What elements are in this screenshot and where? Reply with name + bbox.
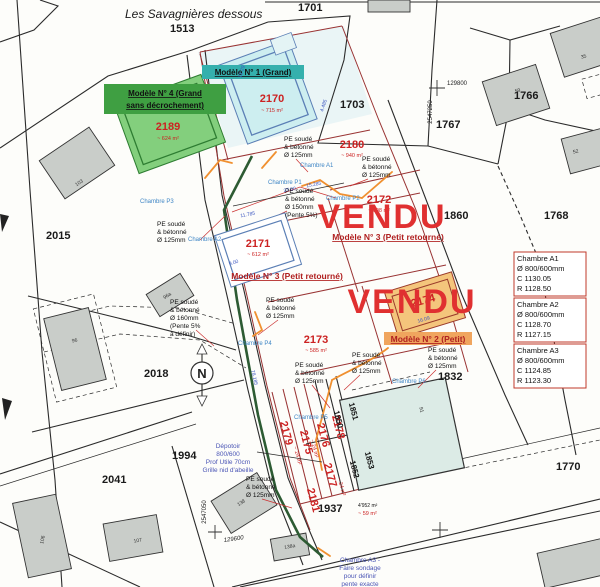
parcel-1937-area: 4'952 m² bbox=[358, 503, 378, 509]
chambre-p4: Chambre P4 bbox=[238, 341, 272, 347]
chambre-p1: Chambre P1 bbox=[268, 180, 302, 186]
lot-2173: 2173 bbox=[304, 334, 328, 346]
model3-label-west: Modèle N° 3 (Petit retourné) bbox=[231, 271, 343, 281]
chambre-p3: Chambre P3 bbox=[140, 199, 174, 205]
parcel-1860: 1860 bbox=[444, 210, 468, 222]
pe-note-10: PE soudé& bétonnéØ 125mm bbox=[246, 476, 276, 499]
lot-2173-area: ~ 585 m² bbox=[305, 348, 327, 354]
lot-2180: 2180 bbox=[340, 139, 364, 151]
parcel-1703: 1703 bbox=[340, 99, 364, 111]
chamber-table: Chambre A1Ø 800/600mmC 1130.05R 1128.50 … bbox=[514, 252, 586, 388]
chambre-p2: Chambre P2 bbox=[326, 196, 360, 202]
coord-bottom-north: 2547050 bbox=[202, 500, 208, 524]
pe-note-9: PE soudé& bétonnéØ 125mm bbox=[295, 362, 325, 385]
pe-note-4: PE soudé& bétonnéØ 125mm bbox=[362, 156, 392, 179]
model2-label: Modèle N° 2 (Petit) bbox=[391, 334, 466, 344]
chambre-a2: Chambre A2 bbox=[188, 237, 222, 243]
parcel-1770: 1770 bbox=[556, 461, 580, 473]
parcel-1767: 1767 bbox=[436, 119, 460, 131]
building-top bbox=[368, 0, 410, 12]
parcel-1768: 1768 bbox=[544, 210, 568, 222]
pe-note-8: PE soudé& bétonnéØ 125mm bbox=[428, 347, 458, 370]
vendu-stamp-1: VENDU bbox=[317, 198, 446, 236]
parcel-2015: 2015 bbox=[46, 230, 70, 242]
parcel-1701: 1701 bbox=[298, 2, 322, 14]
pe-note-6: PE soudé& bétonnéØ 125mm bbox=[266, 297, 296, 320]
lot-2171-area: ~ 612 m² bbox=[247, 252, 269, 258]
parcel-2018: 2018 bbox=[144, 368, 168, 380]
area-title: Les Savagnières dessous bbox=[125, 7, 262, 21]
parcel-1937-area-red: ~ 59 m² bbox=[358, 511, 377, 517]
model1-label: Modèle N° 1 (Grand) bbox=[215, 68, 292, 77]
lot-2189-area: ~ 624 m² bbox=[157, 136, 179, 142]
coord-top-east: 129800 bbox=[447, 81, 468, 87]
pe-note-7: PE soudé& bétonnéØ 125mm bbox=[352, 352, 382, 375]
lot-2170: 2170 bbox=[260, 93, 284, 105]
model4-label-line2: sans décrochement) bbox=[126, 101, 204, 110]
lot-2189: 2189 bbox=[156, 121, 180, 133]
vendu-stamp-2: VENDU bbox=[347, 283, 476, 321]
model4-label-line1: Modèle N° 4 (Grand bbox=[128, 89, 202, 98]
parcel-1832: 1832 bbox=[438, 371, 462, 383]
parcel-1994: 1994 bbox=[172, 450, 197, 462]
cadastral-plan: N Les Savagnières dessous 1513 1701 1703… bbox=[0, 0, 600, 587]
chambre-a1: Chambre A1 bbox=[300, 163, 334, 169]
pe-note-1: PE soudé& bétonnéØ 125mm bbox=[157, 221, 187, 244]
coord-top-north: 2547250 bbox=[428, 100, 434, 124]
parcel-2041: 2041 bbox=[102, 474, 126, 486]
chambre-p5: Chambre P5 bbox=[294, 415, 328, 421]
pe-note-3: PE soudé& bétonnéØ 125mm bbox=[284, 136, 314, 159]
chambre-p6: Chambre P6 bbox=[392, 379, 426, 385]
lot-2180-area: ~ 940 m² bbox=[341, 153, 363, 159]
lot-2170-area: ~ 715 m² bbox=[261, 108, 283, 114]
lot-2171: 2171 bbox=[246, 238, 270, 250]
parcel-1513: 1513 bbox=[170, 23, 194, 35]
north-letter: N bbox=[197, 366, 206, 381]
